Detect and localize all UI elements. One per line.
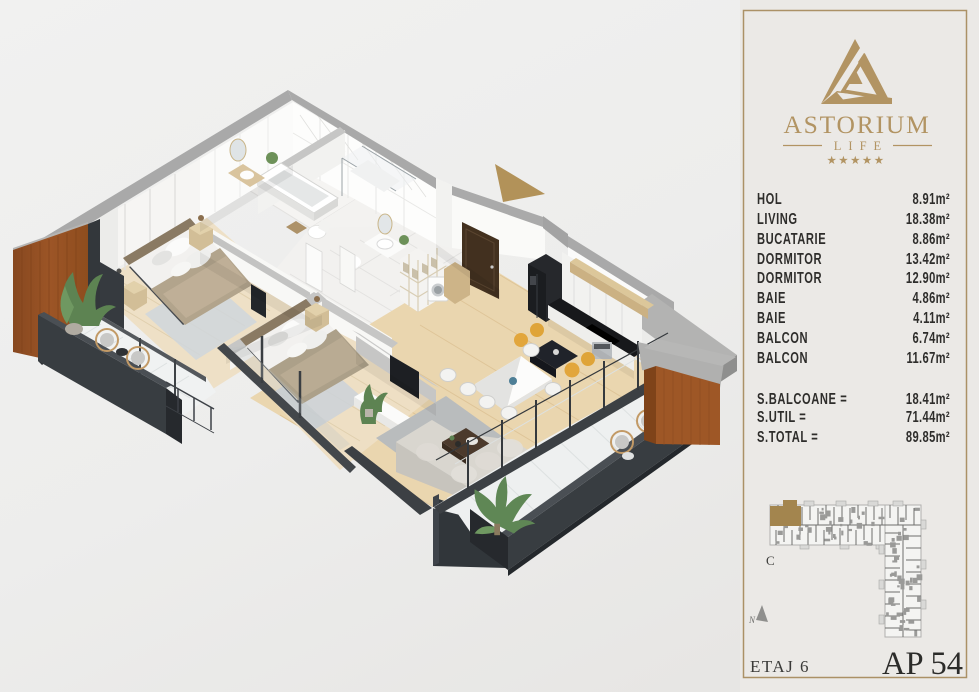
svg-text:4.86m²: 4.86m²: [912, 289, 950, 306]
svg-text:BUCATARIE: BUCATARIE: [757, 230, 826, 247]
svg-text:8.86m²: 8.86m²: [912, 230, 950, 247]
svg-text:HOL: HOL: [757, 190, 782, 207]
svg-text:★★★★★: ★★★★★: [826, 155, 885, 167]
svg-text:C: C: [766, 553, 775, 568]
svg-text:6.74m²: 6.74m²: [912, 329, 950, 346]
svg-text:8.91m²: 8.91m²: [912, 190, 950, 207]
svg-text:AP 54: AP 54: [882, 646, 963, 682]
svg-text:N: N: [748, 615, 756, 625]
svg-text:S.TOTAL =: S.TOTAL =: [757, 428, 818, 445]
svg-text:BAIE: BAIE: [757, 289, 786, 306]
svg-text:ETAJ 6: ETAJ 6: [750, 657, 810, 676]
svg-text:DORMITOR: DORMITOR: [757, 269, 822, 286]
svg-text:ASTORIUM: ASTORIUM: [783, 110, 930, 139]
svg-text:89.85m²: 89.85m²: [906, 428, 950, 445]
svg-text:S.BALCOANE =: S.BALCOANE =: [757, 390, 847, 407]
svg-text:12.90m²: 12.90m²: [906, 269, 950, 286]
svg-text:13.42m²: 13.42m²: [906, 250, 950, 267]
svg-text:71.44m²: 71.44m²: [906, 408, 950, 425]
svg-text:DORMITOR: DORMITOR: [757, 250, 822, 267]
svg-text:4.11m²: 4.11m²: [913, 309, 950, 326]
svg-text:11.67m²: 11.67m²: [907, 349, 951, 366]
svg-text:BALCON: BALCON: [757, 349, 808, 366]
svg-text:S.UTIL =: S.UTIL =: [757, 408, 806, 425]
svg-text:18.41m²: 18.41m²: [906, 390, 950, 407]
svg-text:BAIE: BAIE: [757, 309, 786, 326]
svg-text:BALCON: BALCON: [757, 329, 808, 346]
svg-text:18.38m²: 18.38m²: [906, 210, 950, 227]
svg-text:LIFE: LIFE: [834, 139, 888, 153]
svg-text:LIVING: LIVING: [757, 210, 798, 227]
